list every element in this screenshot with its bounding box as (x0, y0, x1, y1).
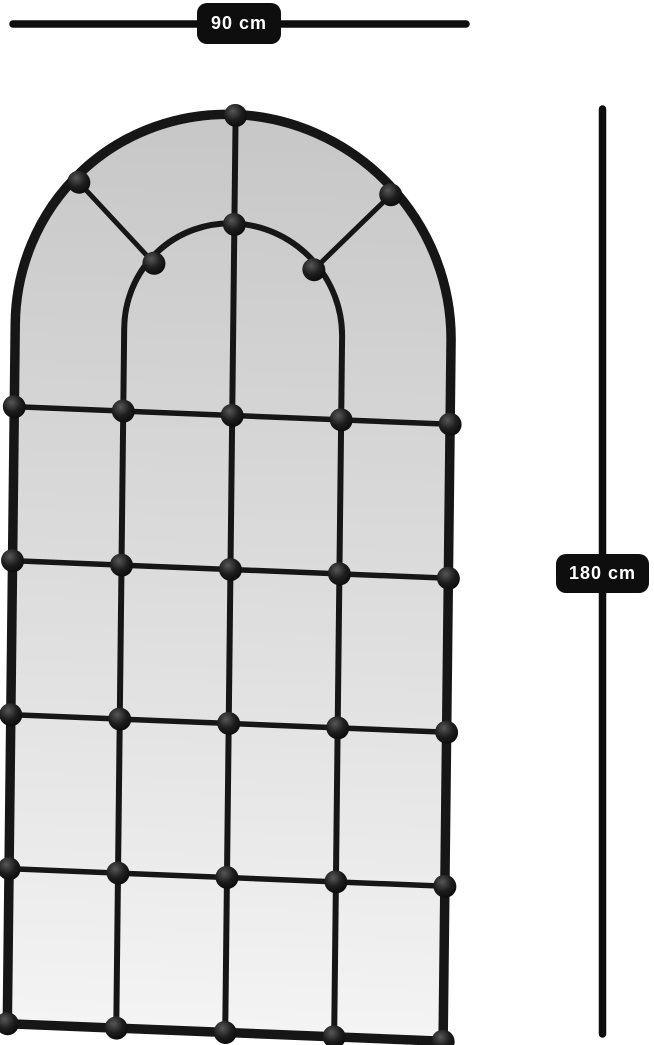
height-dimension-value: 180 cm (569, 563, 636, 584)
mirror-dimension-figure (0, 0, 654, 1045)
width-dimension-value: 90 cm (211, 13, 267, 34)
height-dimension-label: 180 cm (556, 554, 649, 593)
product-dimension-diagram: 90 cm 180 cm (0, 0, 654, 1045)
mirror-graphic (0, 95, 465, 1045)
width-dimension-label: 90 cm (197, 3, 281, 44)
